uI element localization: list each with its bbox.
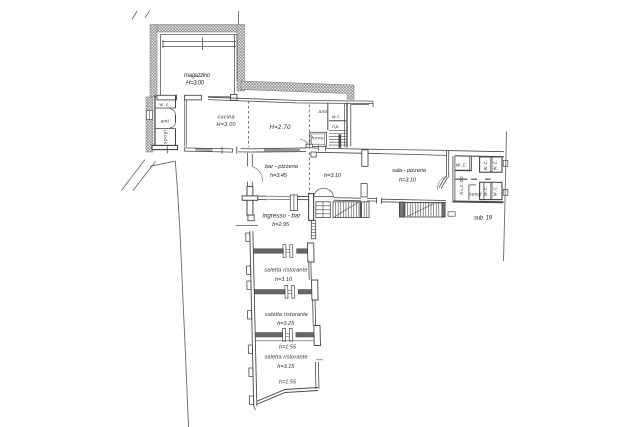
svg-text:h=2.95: h=2.95: [272, 222, 290, 228]
svg-text:anti: anti: [161, 118, 170, 123]
svg-text:h=3.25: h=3.25: [277, 321, 295, 327]
svg-text:bar - pizzeria: bar - pizzeria: [265, 164, 299, 170]
svg-text:w.c.: w.c.: [332, 114, 341, 119]
svg-text:W.C.: W.C.: [456, 163, 468, 168]
svg-text:cucina: cucina: [218, 115, 235, 121]
svg-text:rip.: rip.: [332, 124, 340, 129]
svg-text:W.C.: W.C.: [493, 185, 498, 196]
svg-text:H=2.70: H=2.70: [270, 125, 292, 131]
svg-text:h=3.10: h=3.10: [275, 277, 292, 283]
svg-text:saletta ristorante: saletta ristorante: [265, 312, 308, 318]
svg-text:h=1.55: h=1.55: [279, 380, 297, 386]
svg-text:h=3.15: h=3.15: [277, 364, 295, 370]
svg-text:magazzino: magazzino: [184, 73, 211, 79]
svg-text:H=3.00: H=3.00: [186, 81, 205, 87]
svg-text:h=1.55: h=1.55: [279, 345, 297, 351]
svg-text:ingresso - bar: ingresso - bar: [263, 212, 302, 219]
svg-text:h=3.10: h=3.10: [324, 173, 342, 179]
svg-text:forno: forno: [312, 136, 324, 141]
svg-text:anti: anti: [319, 109, 328, 114]
svg-text:W.C.: W.C.: [483, 185, 488, 196]
svg-text:spogl: spogl: [469, 191, 482, 196]
svg-text:saletta ristorante: saletta ristorante: [264, 267, 307, 273]
svg-text:h=3.00: h=3.00: [459, 176, 464, 194]
svg-text:H=3.00: H=3.00: [217, 122, 236, 128]
svg-text:h=3.10: h=3.10: [399, 178, 417, 184]
svg-text:spogl: spogl: [163, 129, 168, 144]
svg-text:W.C.: W.C.: [493, 160, 498, 171]
svg-text:W.C.: W.C.: [483, 160, 488, 171]
svg-text:sala - pizzeria: sala - pizzeria: [392, 168, 427, 174]
svg-text:saletta ristorante: saletta ristorante: [265, 355, 308, 361]
svg-text:h=3.45: h=3.45: [270, 173, 288, 179]
svg-text:w.c.: w.c.: [160, 102, 171, 107]
svg-text:sub. 19: sub. 19: [474, 215, 493, 221]
